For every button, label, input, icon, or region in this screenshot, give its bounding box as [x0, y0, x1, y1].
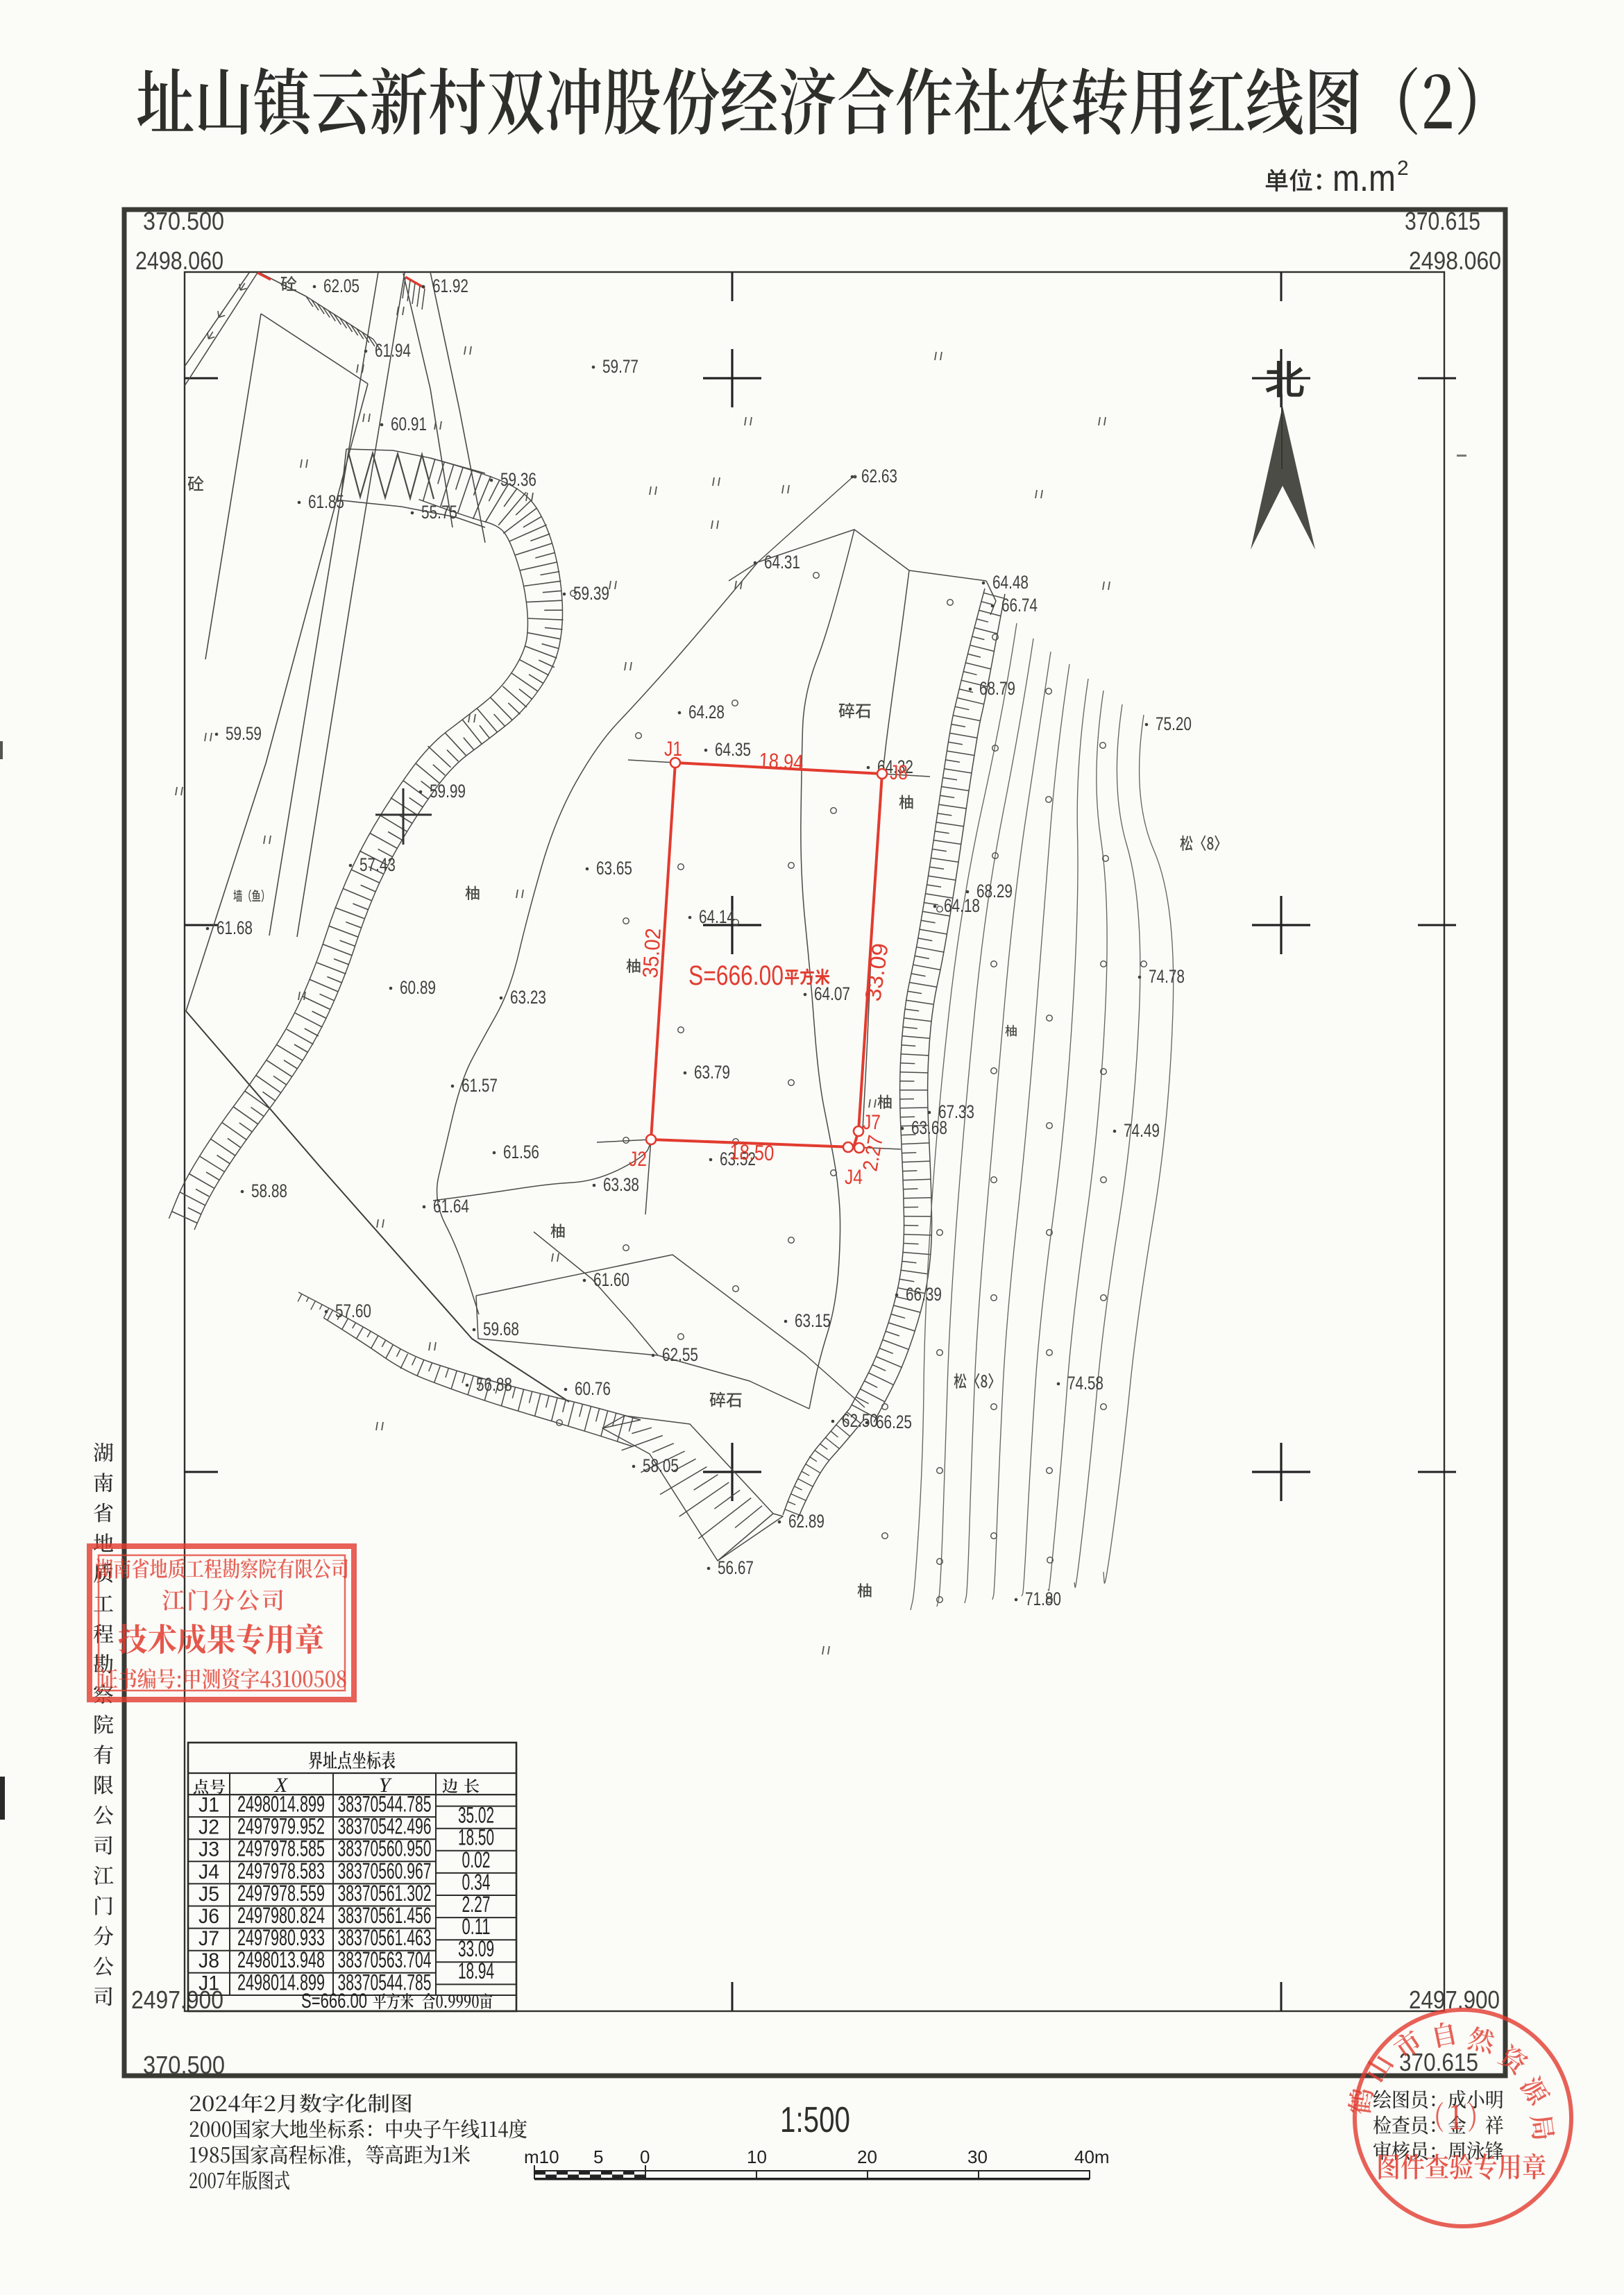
svg-text:33.09: 33.09 [458, 1936, 494, 1961]
svg-text:64.14: 64.14 [699, 906, 735, 927]
svg-text:J7: J7 [198, 1927, 219, 1950]
svg-text:64.07: 64.07 [814, 983, 850, 1004]
svg-text:63.68: 63.68 [911, 1117, 947, 1138]
svg-text:55.75: 55.75 [421, 502, 457, 523]
svg-text:2: 2 [1397, 157, 1409, 180]
svg-text:63.38: 63.38 [603, 1174, 639, 1195]
svg-text:60.91: 60.91 [391, 414, 427, 434]
svg-text:59.59: 59.59 [226, 723, 262, 744]
svg-text:63.65: 63.65 [596, 858, 632, 879]
svg-text:68.79: 68.79 [979, 678, 1015, 699]
svg-text:J6: J6 [198, 1905, 219, 1928]
svg-text:59.39: 59.39 [573, 583, 609, 604]
svg-text:18.94: 18.94 [759, 748, 804, 774]
svg-text:66.25: 66.25 [876, 1412, 912, 1432]
svg-text:38370542.496: 38370542.496 [338, 1814, 432, 1839]
svg-text:64.48: 64.48 [992, 572, 1029, 593]
svg-text:2498014.899: 2498014.899 [237, 1792, 325, 1817]
svg-text:38370560.967: 38370560.967 [338, 1858, 432, 1883]
svg-text:59.99: 59.99 [430, 781, 466, 802]
svg-text:38370560.950: 38370560.950 [338, 1836, 432, 1861]
svg-text:J8: J8 [198, 1949, 219, 1972]
svg-text:62.89: 62.89 [788, 1511, 824, 1532]
svg-text:18.94: 18.94 [458, 1958, 494, 1983]
svg-text:75.20: 75.20 [1156, 713, 1192, 734]
svg-text:62.55: 62.55 [662, 1344, 698, 1365]
svg-text:61.85: 61.85 [308, 491, 344, 512]
svg-text:64.28: 64.28 [688, 702, 725, 722]
svg-text:61.64: 61.64 [433, 1196, 469, 1217]
svg-text:18.50: 18.50 [729, 1140, 775, 1165]
svg-text:66.74: 66.74 [1001, 595, 1038, 616]
svg-text:68.29: 68.29 [976, 881, 1013, 901]
svg-text:J5: J5 [198, 1883, 219, 1906]
svg-text:64.18: 64.18 [944, 895, 980, 916]
svg-text:38370563.704: 38370563.704 [338, 1947, 432, 1972]
svg-text:2497978.559: 2497978.559 [237, 1881, 325, 1906]
svg-text:57.43: 57.43 [360, 854, 396, 875]
svg-text:35.02: 35.02 [458, 1803, 494, 1828]
svg-text:20: 20 [857, 2146, 877, 2167]
svg-text:370.500: 370.500 [143, 2051, 225, 2079]
svg-text:38370544.785: 38370544.785 [338, 1792, 432, 1817]
svg-text:60.89: 60.89 [400, 977, 436, 998]
svg-text:74.78: 74.78 [1149, 966, 1185, 987]
svg-text:10: 10 [747, 2146, 767, 2167]
svg-text:64.35: 64.35 [715, 739, 751, 760]
svg-text:58.88: 58.88 [251, 1180, 287, 1201]
svg-text:63.79: 63.79 [694, 1062, 730, 1083]
svg-text:59.77: 59.77 [602, 356, 638, 377]
svg-text:5: 5 [593, 2146, 603, 2167]
svg-text:33.09: 33.09 [860, 942, 893, 1003]
svg-text:66.39: 66.39 [906, 1284, 942, 1305]
svg-text:62.50: 62.50 [842, 1410, 878, 1431]
svg-text:J1: J1 [664, 738, 682, 761]
svg-text:61.56: 61.56 [503, 1142, 539, 1162]
svg-text:0.11: 0.11 [462, 1914, 491, 1939]
svg-text:35.02: 35.02 [638, 927, 666, 979]
svg-text:S=666.00: S=666.00 [301, 1990, 367, 2013]
svg-text:56.88: 56.88 [476, 1374, 512, 1395]
svg-text:2497978.583: 2497978.583 [237, 1858, 325, 1883]
svg-text:71.80: 71.80 [1025, 1589, 1061, 1609]
svg-text:0.34: 0.34 [462, 1870, 491, 1895]
svg-text:74.49: 74.49 [1124, 1120, 1160, 1141]
svg-text:J2: J2 [629, 1148, 647, 1171]
svg-text:2498.060: 2498.060 [135, 246, 223, 275]
svg-text:2.27: 2.27 [462, 1892, 491, 1917]
svg-text:58.05: 58.05 [643, 1455, 679, 1476]
svg-text:J1: J1 [198, 1972, 219, 1995]
svg-text:0.02: 0.02 [462, 1847, 491, 1872]
svg-text:2497980.933: 2497980.933 [237, 1925, 325, 1950]
svg-text:60.76: 60.76 [575, 1378, 611, 1399]
svg-text:1:500: 1:500 [780, 2100, 850, 2140]
svg-text:J7: J7 [863, 1111, 881, 1134]
svg-text:30: 30 [967, 2146, 988, 2167]
svg-text:370.615: 370.615 [1399, 2048, 1478, 2076]
svg-text:J8: J8 [890, 761, 908, 784]
svg-text:2.27: 2.27 [858, 1133, 888, 1173]
svg-text:2497978.585: 2497978.585 [237, 1836, 325, 1861]
svg-text:57.60: 57.60 [335, 1301, 371, 1321]
svg-text:63.23: 63.23 [510, 987, 546, 1008]
svg-text:74.58: 74.58 [1067, 1373, 1103, 1394]
svg-text:40m: 40m [1074, 2146, 1110, 2167]
svg-text:m10: m10 [524, 2146, 559, 2167]
svg-text:38370561.456: 38370561.456 [338, 1903, 432, 1928]
svg-text:38370561.302: 38370561.302 [338, 1881, 432, 1906]
svg-text:61.57: 61.57 [462, 1075, 498, 1096]
svg-text:62.63: 62.63 [861, 466, 897, 486]
svg-text:61.68: 61.68 [217, 917, 253, 938]
svg-text:59.68: 59.68 [483, 1319, 519, 1339]
svg-text:62.05: 62.05 [323, 276, 360, 296]
svg-text:J1: J1 [198, 1794, 219, 1817]
svg-text:59.36: 59.36 [500, 469, 536, 490]
svg-text:2497979.952: 2497979.952 [237, 1814, 325, 1839]
svg-text:S=666.00: S=666.00 [688, 960, 784, 991]
svg-text:0: 0 [640, 2146, 650, 2167]
svg-text:2498013.948: 2498013.948 [237, 1947, 325, 1972]
svg-text:370.500: 370.500 [143, 207, 224, 235]
svg-text:370.615: 370.615 [1405, 207, 1480, 235]
svg-text:38370561.463: 38370561.463 [338, 1925, 432, 1950]
svg-text:2498.060: 2498.060 [1409, 246, 1501, 275]
svg-text:m.m: m.m [1333, 158, 1396, 199]
svg-text:J2: J2 [198, 1816, 219, 1839]
svg-text:56.67: 56.67 [718, 1557, 754, 1578]
svg-text:J4: J4 [198, 1861, 219, 1883]
svg-text:61.60: 61.60 [593, 1269, 629, 1290]
svg-text:2497980.824: 2497980.824 [237, 1903, 325, 1928]
svg-text:18.50: 18.50 [458, 1825, 494, 1850]
svg-text:63.15: 63.15 [795, 1310, 831, 1331]
svg-text:61.92: 61.92 [432, 276, 468, 296]
svg-text:64.31: 64.31 [764, 552, 800, 573]
svg-text:J3: J3 [198, 1838, 219, 1861]
svg-text:61.94: 61.94 [375, 340, 411, 361]
